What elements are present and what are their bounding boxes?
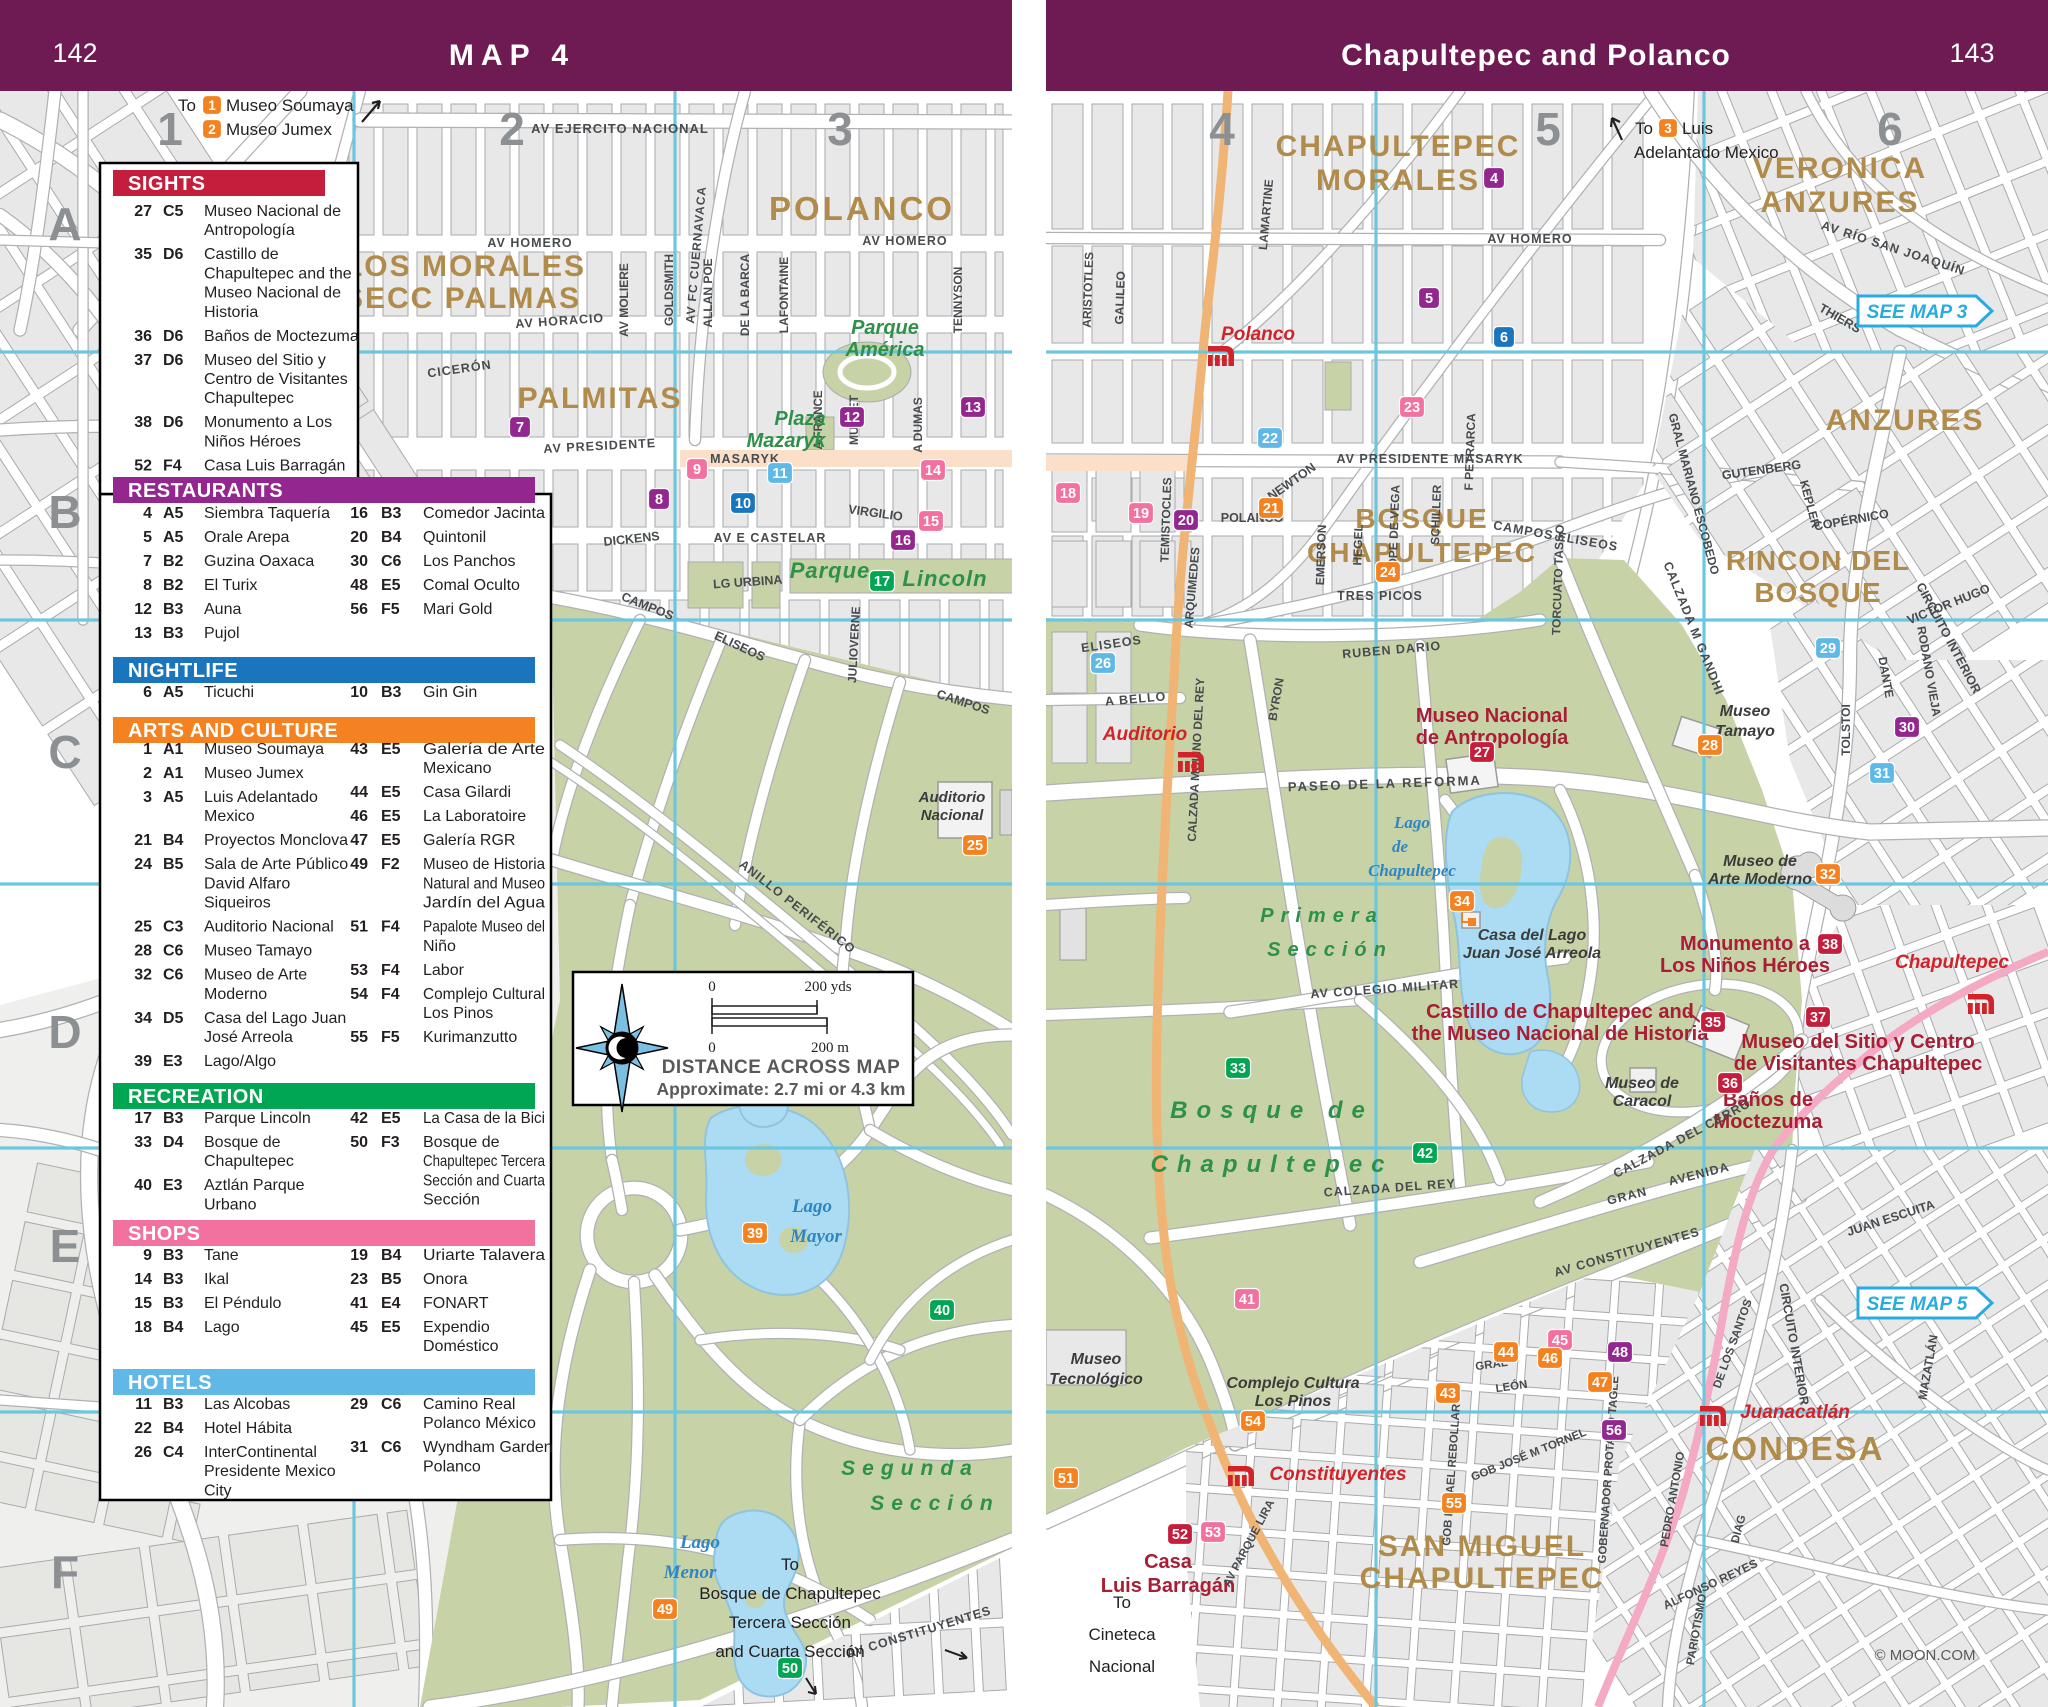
svg-text:GALILEO: GALILEO bbox=[1112, 271, 1128, 325]
svg-text:34: 34 bbox=[1454, 894, 1470, 910]
svg-text:40: 40 bbox=[934, 1303, 950, 1319]
svg-text:ARTS AND CULTURE: ARTS AND CULTURE bbox=[128, 720, 338, 742]
svg-text:B4: B4 bbox=[163, 1420, 184, 1437]
svg-text:Lago: Lago bbox=[1393, 813, 1430, 832]
svg-text:41: 41 bbox=[1239, 1292, 1255, 1308]
svg-text:A5: A5 bbox=[163, 684, 184, 701]
svg-text:A: A bbox=[48, 198, 81, 250]
svg-text:1: 1 bbox=[208, 98, 216, 113]
svg-text:Chapultepec Tercera: Chapultepec Tercera bbox=[423, 1153, 545, 1170]
svg-text:18: 18 bbox=[134, 1319, 152, 1336]
svg-text:ALLAN POE: ALLAN POE bbox=[701, 258, 715, 327]
svg-text:53: 53 bbox=[350, 962, 368, 979]
svg-text:A5: A5 bbox=[163, 789, 184, 806]
svg-text:51: 51 bbox=[1058, 1471, 1074, 1487]
svg-text:29: 29 bbox=[1820, 641, 1836, 657]
svg-text:Natural and Museo: Natural and Museo bbox=[423, 875, 545, 892]
svg-text:Tercera Sección: Tercera Sección bbox=[729, 1613, 851, 1632]
svg-text:21: 21 bbox=[1263, 501, 1279, 517]
svg-text:HEGEL: HEGEL bbox=[1350, 524, 1365, 566]
svg-text:C6: C6 bbox=[381, 553, 402, 570]
svg-text:Polanco México: Polanco México bbox=[423, 1415, 536, 1432]
svg-text:B4: B4 bbox=[381, 1247, 402, 1264]
svg-text:1: 1 bbox=[143, 741, 152, 758]
svg-text:8: 8 bbox=[143, 577, 152, 594]
svg-text:F5: F5 bbox=[381, 1029, 400, 1046]
svg-text:Chapultepec and the: Chapultepec and the bbox=[204, 265, 352, 282]
svg-text:Los Panchos: Los Panchos bbox=[423, 553, 516, 570]
svg-text:América: América bbox=[845, 339, 925, 361]
svg-text:Luis: Luis bbox=[1682, 119, 1713, 138]
svg-text:42: 42 bbox=[350, 1110, 368, 1127]
svg-text:30: 30 bbox=[350, 553, 368, 570]
svg-text:48: 48 bbox=[1612, 1345, 1628, 1361]
svg-text:NIGHTLIFE: NIGHTLIFE bbox=[128, 660, 238, 682]
svg-text:Gin Gin: Gin Gin bbox=[423, 684, 477, 701]
svg-text:37: 37 bbox=[134, 352, 152, 369]
svg-text:Los Pinos: Los Pinos bbox=[1255, 1393, 1332, 1410]
svg-text:SCHILLER: SCHILLER bbox=[1428, 484, 1444, 545]
svg-text:35: 35 bbox=[134, 246, 152, 263]
svg-text:D6: D6 bbox=[163, 414, 184, 431]
svg-text:Museo Nacional de: Museo Nacional de bbox=[204, 203, 341, 220]
svg-text:Museo Jumex: Museo Jumex bbox=[204, 765, 304, 782]
svg-text:43: 43 bbox=[350, 741, 368, 758]
svg-text:Luis Adelantado: Luis Adelantado bbox=[204, 789, 318, 806]
svg-text:Uriarte Talavera: Uriarte Talavera bbox=[423, 1247, 545, 1264]
svg-text:Los Pinos: Los Pinos bbox=[423, 1005, 493, 1022]
svg-text:4: 4 bbox=[1209, 103, 1235, 155]
svg-text:CHAPULTEPEC: CHAPULTEPEC bbox=[1307, 537, 1537, 568]
svg-text:Presidente Mexico: Presidente Mexico bbox=[204, 1463, 336, 1480]
svg-text:Niños Héroes: Niños Héroes bbox=[204, 433, 301, 450]
svg-text:Parque Lincoln: Parque Lincoln bbox=[204, 1110, 311, 1127]
svg-text:E5: E5 bbox=[381, 741, 401, 758]
svg-text:HOTELS: HOTELS bbox=[128, 1372, 212, 1394]
svg-text:B3: B3 bbox=[163, 1295, 184, 1312]
svg-text:35: 35 bbox=[1705, 1015, 1721, 1031]
svg-text:C6: C6 bbox=[381, 1439, 402, 1456]
svg-text:E5: E5 bbox=[381, 832, 401, 849]
svg-text:SHOPS: SHOPS bbox=[128, 1223, 201, 1245]
svg-text:the Museo Nacional de Historia: the Museo Nacional de Historia bbox=[1412, 1023, 1710, 1045]
svg-text:7: 7 bbox=[516, 420, 524, 436]
svg-text:B5: B5 bbox=[163, 856, 184, 873]
svg-text:7: 7 bbox=[143, 553, 152, 570]
svg-text:Complejo Cultural: Complejo Cultural bbox=[423, 986, 545, 1003]
svg-text:Museo: Museo bbox=[1071, 1351, 1122, 1368]
svg-text:54: 54 bbox=[1245, 1414, 1261, 1430]
svg-text:47: 47 bbox=[1592, 1375, 1608, 1391]
svg-text:GOLDSMITH: GOLDSMITH bbox=[662, 254, 676, 326]
svg-text:Mayor: Mayor bbox=[789, 1226, 842, 1247]
svg-text:C5: C5 bbox=[163, 203, 184, 220]
svg-text:33: 33 bbox=[1230, 1061, 1246, 1077]
svg-text:El Turix: El Turix bbox=[204, 577, 257, 594]
svg-text:15: 15 bbox=[923, 514, 939, 530]
svg-text:19: 19 bbox=[1133, 506, 1149, 522]
svg-text:FONART: FONART bbox=[423, 1295, 489, 1312]
svg-text:Tamayo: Tamayo bbox=[1715, 723, 1775, 740]
svg-text:SAN MIGUEL: SAN MIGUEL bbox=[1378, 1530, 1586, 1563]
svg-text:3: 3 bbox=[1664, 121, 1672, 136]
svg-text:Guzina Oaxaca: Guzina Oaxaca bbox=[204, 553, 314, 570]
svg-text:D6: D6 bbox=[163, 328, 184, 345]
svg-text:DE LA BARCA: DE LA BARCA bbox=[738, 254, 752, 337]
svg-text:20: 20 bbox=[1178, 513, 1194, 529]
svg-text:E5: E5 bbox=[381, 784, 401, 801]
svg-text:B3: B3 bbox=[163, 1271, 184, 1288]
svg-text:C6: C6 bbox=[381, 1396, 402, 1413]
svg-text:Juan José Arreola: Juan José Arreola bbox=[1463, 945, 1601, 962]
svg-text:24: 24 bbox=[134, 856, 152, 873]
svg-text:21: 21 bbox=[134, 832, 152, 849]
svg-text:45: 45 bbox=[350, 1319, 368, 1336]
svg-text:2: 2 bbox=[208, 122, 216, 137]
svg-text:A5: A5 bbox=[163, 529, 184, 546]
svg-text:ARISTOTLES: ARISTOTLES bbox=[1080, 252, 1097, 328]
svg-text:B3: B3 bbox=[163, 625, 184, 642]
svg-text:E5: E5 bbox=[381, 808, 401, 825]
svg-text:34: 34 bbox=[134, 1010, 152, 1027]
svg-text:Museo Jumex: Museo Jumex bbox=[226, 120, 332, 139]
svg-text:5: 5 bbox=[143, 529, 152, 546]
svg-text:Museo de Arte: Museo de Arte bbox=[204, 967, 307, 984]
svg-text:28: 28 bbox=[134, 943, 152, 960]
svg-text:56: 56 bbox=[350, 601, 368, 618]
svg-text:Tane: Tane bbox=[204, 1247, 239, 1264]
svg-text:Museo Nacional: Museo Nacional bbox=[1416, 705, 1568, 727]
svg-text:Arte Moderno: Arte Moderno bbox=[1707, 871, 1812, 888]
svg-text:Siqueiros: Siqueiros bbox=[204, 895, 271, 912]
svg-text:B4: B4 bbox=[163, 1319, 184, 1336]
svg-text:25: 25 bbox=[134, 919, 152, 936]
svg-text:A5: A5 bbox=[163, 505, 184, 522]
svg-text:D6: D6 bbox=[163, 352, 184, 369]
svg-text:Lincoln: Lincoln bbox=[902, 566, 987, 591]
svg-text:A1: A1 bbox=[163, 741, 184, 758]
svg-text:Primera: Primera bbox=[1260, 905, 1384, 927]
svg-text:18: 18 bbox=[1060, 486, 1076, 502]
svg-text:Museo Soumaya: Museo Soumaya bbox=[204, 741, 324, 758]
svg-text:5: 5 bbox=[1535, 103, 1561, 155]
svg-text:C3: C3 bbox=[163, 919, 184, 936]
svg-text:14: 14 bbox=[134, 1271, 152, 1288]
svg-text:C: C bbox=[48, 726, 81, 778]
svg-text:Menor: Menor bbox=[663, 1562, 717, 1583]
svg-text:B3: B3 bbox=[163, 1110, 184, 1127]
svg-text:BOSQUE: BOSQUE bbox=[1355, 503, 1488, 534]
svg-text:ANZURES: ANZURES bbox=[1760, 186, 1919, 219]
svg-text:City: City bbox=[204, 1482, 232, 1499]
svg-text:33: 33 bbox=[134, 1134, 152, 1151]
svg-text:2: 2 bbox=[499, 103, 525, 155]
svg-text:Wyndham Garden: Wyndham Garden bbox=[423, 1439, 553, 1456]
svg-text:Bosque de Chapultepec: Bosque de Chapultepec bbox=[699, 1584, 881, 1603]
svg-text:F4: F4 bbox=[163, 457, 182, 474]
svg-text:RESTAURANTS: RESTAURANTS bbox=[128, 480, 283, 502]
svg-text:29: 29 bbox=[350, 1396, 368, 1413]
svg-text:10: 10 bbox=[350, 684, 368, 701]
svg-text:4: 4 bbox=[1490, 171, 1498, 187]
svg-text:Chapultepec: Chapultepec bbox=[1150, 1151, 1393, 1178]
svg-text:Antropología: Antropología bbox=[204, 222, 295, 239]
svg-text:Chapultepec: Chapultepec bbox=[1895, 952, 2009, 973]
svg-text:B: B bbox=[48, 486, 81, 538]
svg-text:B4: B4 bbox=[381, 529, 402, 546]
svg-text:Onora: Onora bbox=[423, 1271, 468, 1288]
svg-text:Los Niños Héroes: Los Niños Héroes bbox=[1660, 955, 1830, 977]
svg-text:Quintonil: Quintonil bbox=[423, 529, 486, 546]
svg-text:B3: B3 bbox=[163, 601, 184, 618]
svg-text:Museo Tamayo: Museo Tamayo bbox=[204, 943, 312, 960]
svg-text:Doméstico: Doméstico bbox=[423, 1338, 499, 1355]
svg-text:Chapultepec: Chapultepec bbox=[204, 390, 294, 407]
svg-text:AV PRESIDENTE MASARYK: AV PRESIDENTE MASARYK bbox=[1337, 452, 1524, 466]
svg-text:D5: D5 bbox=[163, 1010, 184, 1027]
svg-text:Approximate: 2.7 mi or 4.3 km: Approximate: 2.7 mi or 4.3 km bbox=[657, 1079, 906, 1099]
svg-text:45: 45 bbox=[1552, 1333, 1568, 1349]
svg-text:SEE MAP 3: SEE MAP 3 bbox=[1867, 302, 1968, 323]
svg-text:44: 44 bbox=[1498, 1345, 1514, 1361]
svg-text:Hotel Hábita: Hotel Hábita bbox=[204, 1420, 292, 1437]
svg-text:2: 2 bbox=[143, 765, 152, 782]
svg-text:39: 39 bbox=[134, 1053, 152, 1070]
svg-text:B5: B5 bbox=[381, 1271, 402, 1288]
svg-text:Museo: Museo bbox=[1720, 703, 1771, 720]
svg-text:La Casa de la Bici: La Casa de la Bici bbox=[423, 1110, 545, 1127]
svg-text:BOSQUE: BOSQUE bbox=[1754, 577, 1881, 608]
svg-text:AV EJERCITO NACIONAL: AV EJERCITO NACIONAL bbox=[531, 121, 709, 136]
svg-text:MAP 4: MAP 4 bbox=[449, 39, 575, 72]
svg-text:43: 43 bbox=[1440, 1386, 1456, 1402]
svg-text:E: E bbox=[50, 1220, 81, 1272]
svg-text:A1: A1 bbox=[163, 765, 184, 782]
svg-text:VERONICA: VERONICA bbox=[1753, 152, 1927, 185]
svg-text:Caracol: Caracol bbox=[1613, 1093, 1672, 1110]
svg-text:142: 142 bbox=[52, 38, 97, 68]
svg-text:Sección: Sección bbox=[1267, 939, 1393, 961]
svg-text:Monumento a: Monumento a bbox=[1680, 933, 1811, 955]
svg-text:E5: E5 bbox=[381, 1319, 401, 1336]
svg-text:AV HOMERO: AV HOMERO bbox=[487, 236, 572, 250]
svg-text:Plaza: Plaza bbox=[774, 408, 825, 430]
svg-text:Museo Nacional de: Museo Nacional de bbox=[204, 285, 341, 302]
svg-text:22: 22 bbox=[1262, 431, 1278, 447]
svg-text:D6: D6 bbox=[163, 246, 184, 263]
svg-text:B2: B2 bbox=[163, 577, 184, 594]
svg-text:F PETRARCA: F PETRARCA bbox=[1462, 413, 1479, 491]
svg-text:SECC PALMAS: SECC PALMAS bbox=[343, 282, 581, 315]
svg-text:Bosque de: Bosque de bbox=[1170, 1097, 1374, 1124]
svg-text:31: 31 bbox=[350, 1439, 368, 1456]
svg-text:Castillo de: Castillo de bbox=[204, 246, 279, 263]
svg-text:F3: F3 bbox=[381, 1134, 400, 1151]
svg-text:50: 50 bbox=[782, 1661, 798, 1677]
svg-text:3: 3 bbox=[143, 789, 152, 806]
svg-text:Mari Gold: Mari Gold bbox=[423, 601, 492, 618]
svg-text:16: 16 bbox=[350, 505, 368, 522]
svg-text:Polanco: Polanco bbox=[423, 1458, 481, 1475]
svg-text:SIGHTS: SIGHTS bbox=[128, 173, 205, 195]
svg-text:12: 12 bbox=[134, 601, 152, 618]
svg-text:56: 56 bbox=[1606, 1423, 1622, 1439]
svg-text:53: 53 bbox=[1205, 1525, 1221, 1541]
svg-text:DISTANCE ACROSS MAP: DISTANCE ACROSS MAP bbox=[662, 1057, 901, 1078]
svg-text:32: 32 bbox=[1820, 867, 1836, 883]
svg-text:51: 51 bbox=[350, 919, 368, 936]
svg-text:AV MOLIERE: AV MOLIERE bbox=[617, 263, 631, 337]
svg-text:Historia: Historia bbox=[204, 304, 258, 321]
svg-text:C6: C6 bbox=[163, 967, 184, 984]
svg-text:20: 20 bbox=[350, 529, 368, 546]
svg-text:Moderno: Moderno bbox=[204, 986, 267, 1003]
svg-text:Monumento a Los: Monumento a Los bbox=[204, 414, 332, 431]
svg-text:F: F bbox=[51, 1546, 79, 1598]
svg-text:Sala de Arte Público: Sala de Arte Público bbox=[204, 856, 348, 873]
svg-text:ANZURES: ANZURES bbox=[1825, 404, 1984, 437]
svg-text:47: 47 bbox=[350, 832, 368, 849]
svg-text:B2: B2 bbox=[163, 553, 184, 570]
svg-text:9: 9 bbox=[143, 1247, 152, 1264]
svg-text:Galería RGR: Galería RGR bbox=[423, 832, 515, 849]
svg-text:Galería de Arte: Galería de Arte bbox=[423, 741, 545, 758]
svg-text:23: 23 bbox=[1404, 400, 1420, 416]
svg-text:12: 12 bbox=[844, 410, 860, 426]
svg-text:E4: E4 bbox=[381, 1295, 401, 1312]
svg-text:EMERSON: EMERSON bbox=[1313, 524, 1329, 585]
svg-text:Baños de Moctezuma: Baños de Moctezuma bbox=[204, 328, 359, 345]
svg-text:22: 22 bbox=[134, 1420, 152, 1437]
svg-text:32: 32 bbox=[134, 967, 152, 984]
svg-text:Camino Real: Camino Real bbox=[423, 1396, 515, 1413]
svg-text:44: 44 bbox=[350, 784, 368, 801]
svg-text:13: 13 bbox=[134, 625, 152, 642]
svg-text:Museo de Historia: Museo de Historia bbox=[423, 856, 545, 873]
svg-text:6: 6 bbox=[1500, 330, 1508, 346]
svg-text:Papalote Museo del: Papalote Museo del bbox=[423, 919, 545, 936]
svg-text:Constituyentes: Constituyentes bbox=[1269, 1464, 1406, 1485]
svg-text:Sección: Sección bbox=[870, 1492, 1000, 1515]
svg-text:Chapultepec: Chapultepec bbox=[204, 1153, 294, 1170]
svg-text:17: 17 bbox=[874, 574, 890, 590]
svg-text:1: 1 bbox=[157, 103, 183, 155]
svg-text:46: 46 bbox=[1542, 1351, 1558, 1367]
svg-text:Orale Arepa: Orale Arepa bbox=[204, 529, 289, 546]
svg-text:200 yds: 200 yds bbox=[804, 979, 851, 995]
svg-text:13: 13 bbox=[965, 400, 981, 416]
svg-text:Museo de: Museo de bbox=[1605, 1075, 1679, 1092]
svg-text:InterContinental: InterContinental bbox=[204, 1444, 317, 1461]
svg-text:AV HOMERO: AV HOMERO bbox=[862, 234, 947, 248]
svg-text:E5: E5 bbox=[381, 577, 401, 594]
svg-text:49: 49 bbox=[350, 856, 368, 873]
svg-text:TOLSTOI: TOLSTOI bbox=[1839, 704, 1853, 756]
svg-text:Mexico: Mexico bbox=[204, 808, 255, 825]
svg-text:41: 41 bbox=[350, 1295, 368, 1312]
svg-text:José Arreola: José Arreola bbox=[204, 1029, 293, 1046]
svg-text:To: To bbox=[1635, 119, 1653, 138]
svg-text:B3: B3 bbox=[163, 1396, 184, 1413]
svg-text:Auditorio: Auditorio bbox=[918, 789, 986, 806]
svg-text:8: 8 bbox=[655, 492, 663, 508]
svg-text:40: 40 bbox=[134, 1177, 152, 1194]
svg-text:SEE MAP 5: SEE MAP 5 bbox=[1867, 1294, 1968, 1315]
svg-text:CHAPULTEPEC: CHAPULTEPEC bbox=[1360, 1562, 1605, 1595]
svg-text:Lago: Lago bbox=[791, 1196, 832, 1217]
svg-text:Castillo de Chapultepec and: Castillo de Chapultepec and bbox=[1426, 1001, 1694, 1023]
svg-text:46: 46 bbox=[350, 808, 368, 825]
svg-text:Centro de Visitantes: Centro de Visitantes bbox=[204, 371, 348, 388]
svg-text:143: 143 bbox=[1949, 38, 1994, 68]
svg-text:0: 0 bbox=[708, 1040, 716, 1056]
svg-text:Sección: Sección bbox=[423, 1192, 480, 1209]
svg-text:Bosque de: Bosque de bbox=[423, 1134, 500, 1151]
svg-text:Polanco: Polanco bbox=[1221, 324, 1295, 345]
svg-text:19: 19 bbox=[350, 1247, 368, 1264]
svg-text:42: 42 bbox=[1417, 1146, 1433, 1162]
svg-text:Casa Gilardi: Casa Gilardi bbox=[423, 784, 511, 801]
svg-text:Museo Soumaya: Museo Soumaya bbox=[226, 96, 354, 115]
svg-text:AV HOMERO: AV HOMERO bbox=[1487, 232, 1572, 246]
svg-text:David Alfaro: David Alfaro bbox=[204, 875, 290, 892]
svg-text:Ticuchi: Ticuchi bbox=[204, 684, 254, 701]
svg-text:15: 15 bbox=[134, 1295, 152, 1312]
svg-text:F4: F4 bbox=[381, 962, 400, 979]
svg-text:Proyectos Monclova: Proyectos Monclova bbox=[204, 832, 348, 849]
svg-text:Auna: Auna bbox=[204, 601, 241, 618]
svg-text:Auditorio Nacional: Auditorio Nacional bbox=[204, 919, 334, 936]
svg-text:D4: D4 bbox=[163, 1134, 184, 1151]
svg-text:9: 9 bbox=[693, 462, 701, 478]
svg-text:TRES PICOS: TRES PICOS bbox=[1337, 589, 1423, 603]
svg-text:LOS MORALES: LOS MORALES bbox=[344, 250, 586, 283]
svg-text:Sección and Cuarta: Sección and Cuarta bbox=[423, 1172, 545, 1189]
svg-text:B4: B4 bbox=[163, 832, 184, 849]
svg-text:de Visitantes Chapultepec: de Visitantes Chapultepec bbox=[1734, 1053, 1983, 1075]
svg-text:38: 38 bbox=[1822, 937, 1838, 953]
svg-text:39: 39 bbox=[747, 1226, 763, 1242]
svg-text:55: 55 bbox=[350, 1029, 368, 1046]
svg-text:Labor: Labor bbox=[423, 962, 465, 979]
svg-text:de: de bbox=[1392, 837, 1409, 856]
svg-text:LAFONTAINE: LAFONTAINE bbox=[777, 257, 791, 333]
svg-text:Complejo Cultura: Complejo Cultura bbox=[1226, 1375, 1359, 1392]
svg-text:F5: F5 bbox=[381, 601, 400, 618]
svg-text:Aztlán Parque: Aztlán Parque bbox=[204, 1177, 305, 1194]
svg-text:F4: F4 bbox=[381, 919, 400, 936]
svg-text:17: 17 bbox=[134, 1110, 152, 1127]
svg-text:CONDESA: CONDESA bbox=[1705, 1430, 1884, 1467]
svg-text:RECREATION: RECREATION bbox=[128, 1086, 264, 1108]
svg-text:To: To bbox=[1113, 1593, 1131, 1612]
svg-text:E5: E5 bbox=[381, 1110, 401, 1127]
svg-text:27: 27 bbox=[1474, 745, 1490, 761]
svg-text:24: 24 bbox=[1380, 565, 1396, 581]
svg-text:El Péndulo: El Péndulo bbox=[204, 1295, 281, 1312]
svg-text:Museo del Sitio y: Museo del Sitio y bbox=[204, 352, 326, 369]
svg-text:B3: B3 bbox=[381, 684, 402, 701]
svg-text:14: 14 bbox=[925, 463, 941, 479]
svg-text:Mazaryk: Mazaryk bbox=[747, 430, 827, 452]
svg-text:26: 26 bbox=[1095, 656, 1111, 672]
svg-text:Kurimanzutto: Kurimanzutto bbox=[423, 1029, 517, 1046]
svg-text:RINCON DEL: RINCON DEL bbox=[1726, 545, 1910, 576]
svg-text:Museo del Sitio y Centro: Museo del Sitio y Centro bbox=[1741, 1031, 1974, 1053]
svg-text:10: 10 bbox=[735, 496, 751, 512]
svg-text:Museo de: Museo de bbox=[1723, 853, 1797, 870]
svg-text:200 m: 200 m bbox=[811, 1040, 849, 1056]
